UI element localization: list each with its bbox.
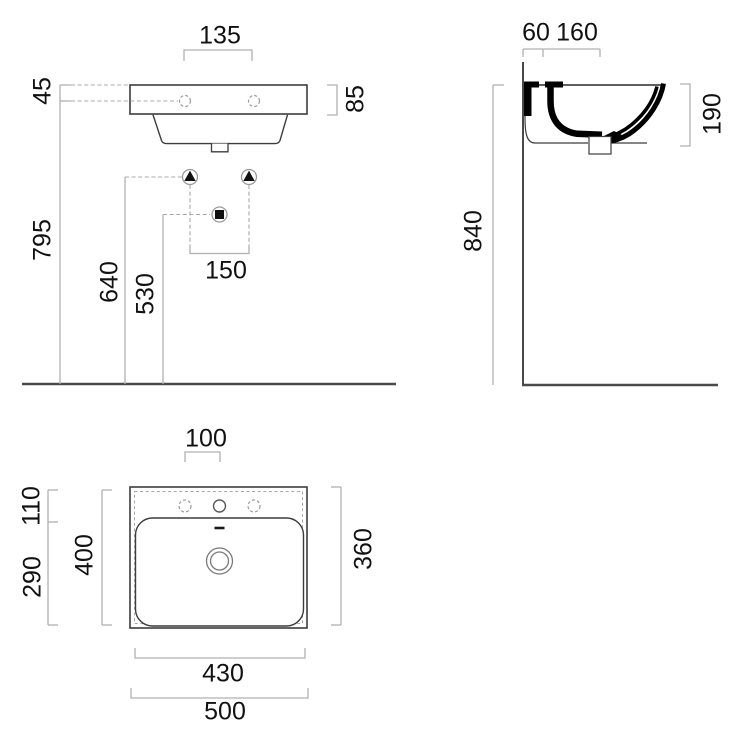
front-drain-stub (212, 144, 229, 152)
dim-label-85: 85 (344, 85, 369, 113)
dim-label-400: 400 (73, 534, 98, 576)
side-view (493, 49, 718, 385)
technical-drawing-canvas: 135 45 85 795 640 530 150 60 160 840 190… (0, 0, 750, 750)
section-drain-box (589, 137, 611, 155)
dim-label-45: 45 (31, 77, 56, 105)
dim-label-430: 430 (202, 662, 244, 687)
washbasin-drawing (0, 0, 750, 750)
dim-bracket-430 (135, 648, 305, 658)
dim-label-190: 190 (701, 93, 726, 135)
dim-bracket-85 (327, 85, 337, 115)
dim-bracket-190 (680, 84, 690, 146)
dim-bracket-100 (185, 452, 220, 462)
dim-label-100: 100 (185, 427, 227, 452)
dim-label-160: 160 (556, 21, 598, 46)
dim-label-640: 640 (98, 261, 123, 303)
front-rim (130, 85, 307, 114)
drain-marker-icon (215, 210, 224, 219)
front-view (22, 50, 396, 384)
dim-label-840: 840 (462, 210, 487, 252)
dim-label-360: 360 (352, 528, 377, 570)
dim-label-530: 530 (134, 273, 159, 315)
dim-label-290: 290 (21, 556, 46, 598)
dim-label-795: 795 (31, 219, 56, 261)
dim-label-110: 110 (20, 486, 45, 526)
dim-label-150: 150 (205, 259, 247, 284)
section-wall-bracket (524, 82, 539, 117)
front-bowl (153, 115, 288, 144)
dim-bracket-150 (190, 245, 249, 254)
plan-bowl (136, 518, 304, 626)
dim-bracket-135 (184, 50, 252, 61)
section-bowl-wall (551, 86, 603, 135)
dim-label-135: 135 (199, 24, 241, 49)
dim-label-500: 500 (204, 700, 246, 725)
basin-cross-section (524, 82, 664, 155)
dim-label-60: 60 (522, 21, 550, 46)
dim-bracket-500 (131, 688, 308, 698)
